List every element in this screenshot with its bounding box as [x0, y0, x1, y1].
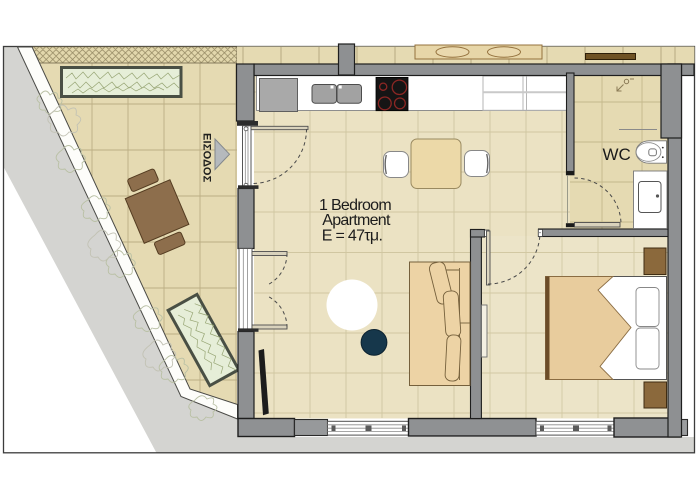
svg-text:ΕΙΣΟΔΟΣ: ΕΙΣΟΔΟΣ [201, 133, 213, 183]
svg-text:E = 47τμ.: E = 47τμ. [322, 227, 382, 244]
svg-text:WC: WC [603, 145, 631, 164]
